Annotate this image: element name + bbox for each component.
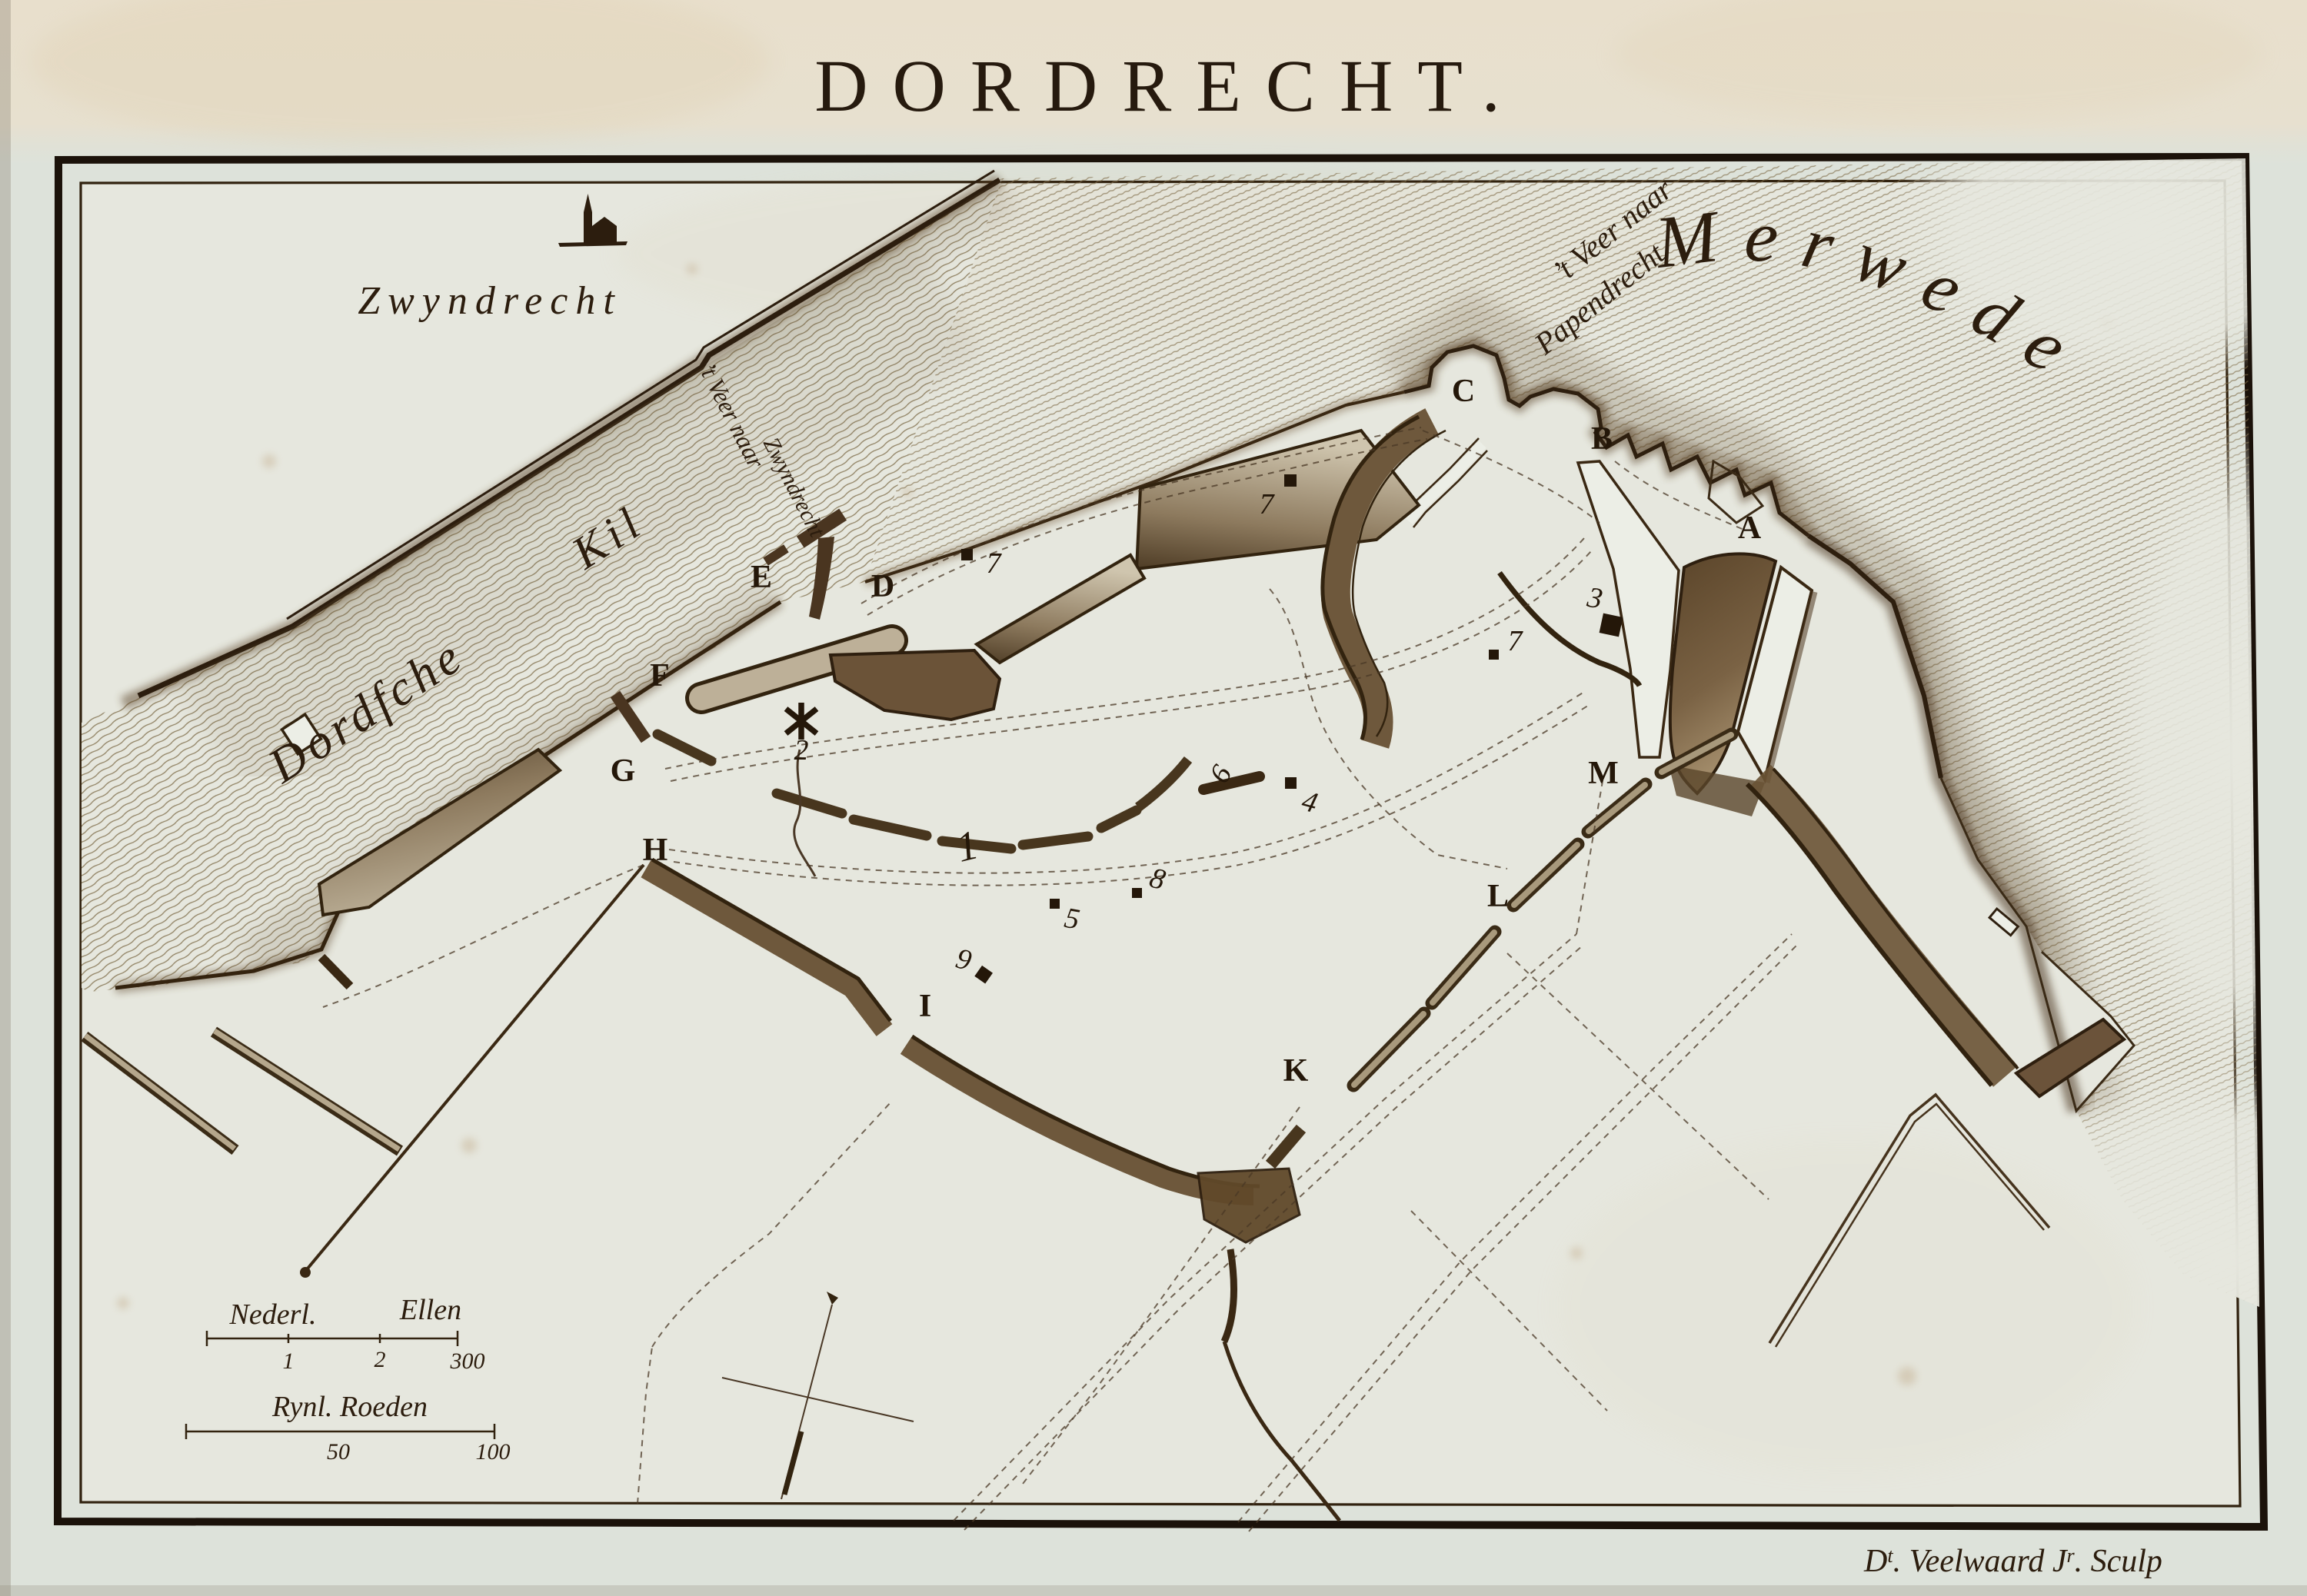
svg-text:D: D	[871, 569, 894, 604]
svg-text:7: 7	[987, 547, 1003, 580]
svg-text:F: F	[650, 658, 670, 693]
svg-text:2: 2	[794, 734, 809, 766]
svg-text:100: 100	[476, 1439, 511, 1465]
svg-text:A: A	[1738, 510, 1762, 546]
svg-text:Nederl.: Nederl.	[229, 1298, 317, 1331]
svg-text:K: K	[1283, 1053, 1309, 1089]
svg-text:I: I	[919, 989, 931, 1024]
svg-text:50: 50	[327, 1439, 350, 1465]
svg-text:7: 7	[1260, 488, 1276, 520]
svg-text:DORDRECHT.: DORDRECHT.	[814, 45, 1525, 127]
svg-text:B: B	[1591, 421, 1613, 457]
svg-text:1: 1	[283, 1348, 295, 1374]
svg-text:2: 2	[375, 1347, 386, 1372]
svg-text:Dt. Veelwaard Jr. Sculp: Dt. Veelwaard Jr. Sculp	[1863, 1544, 2162, 1579]
svg-text:M: M	[1588, 756, 1619, 791]
svg-text:H: H	[643, 833, 668, 868]
svg-text:C: C	[1452, 374, 1475, 409]
svg-text:E: E	[751, 560, 772, 595]
svg-text:300: 300	[450, 1348, 485, 1374]
svg-text:Rynl. Roeden: Rynl. Roeden	[271, 1391, 428, 1423]
svg-text:7: 7	[1508, 625, 1524, 657]
svg-text:Zwyndrecht: Zwyndrecht	[358, 279, 622, 323]
svg-text:Ellen: Ellen	[399, 1294, 461, 1326]
svg-text:L: L	[1487, 879, 1509, 914]
svg-text:G: G	[611, 753, 636, 789]
